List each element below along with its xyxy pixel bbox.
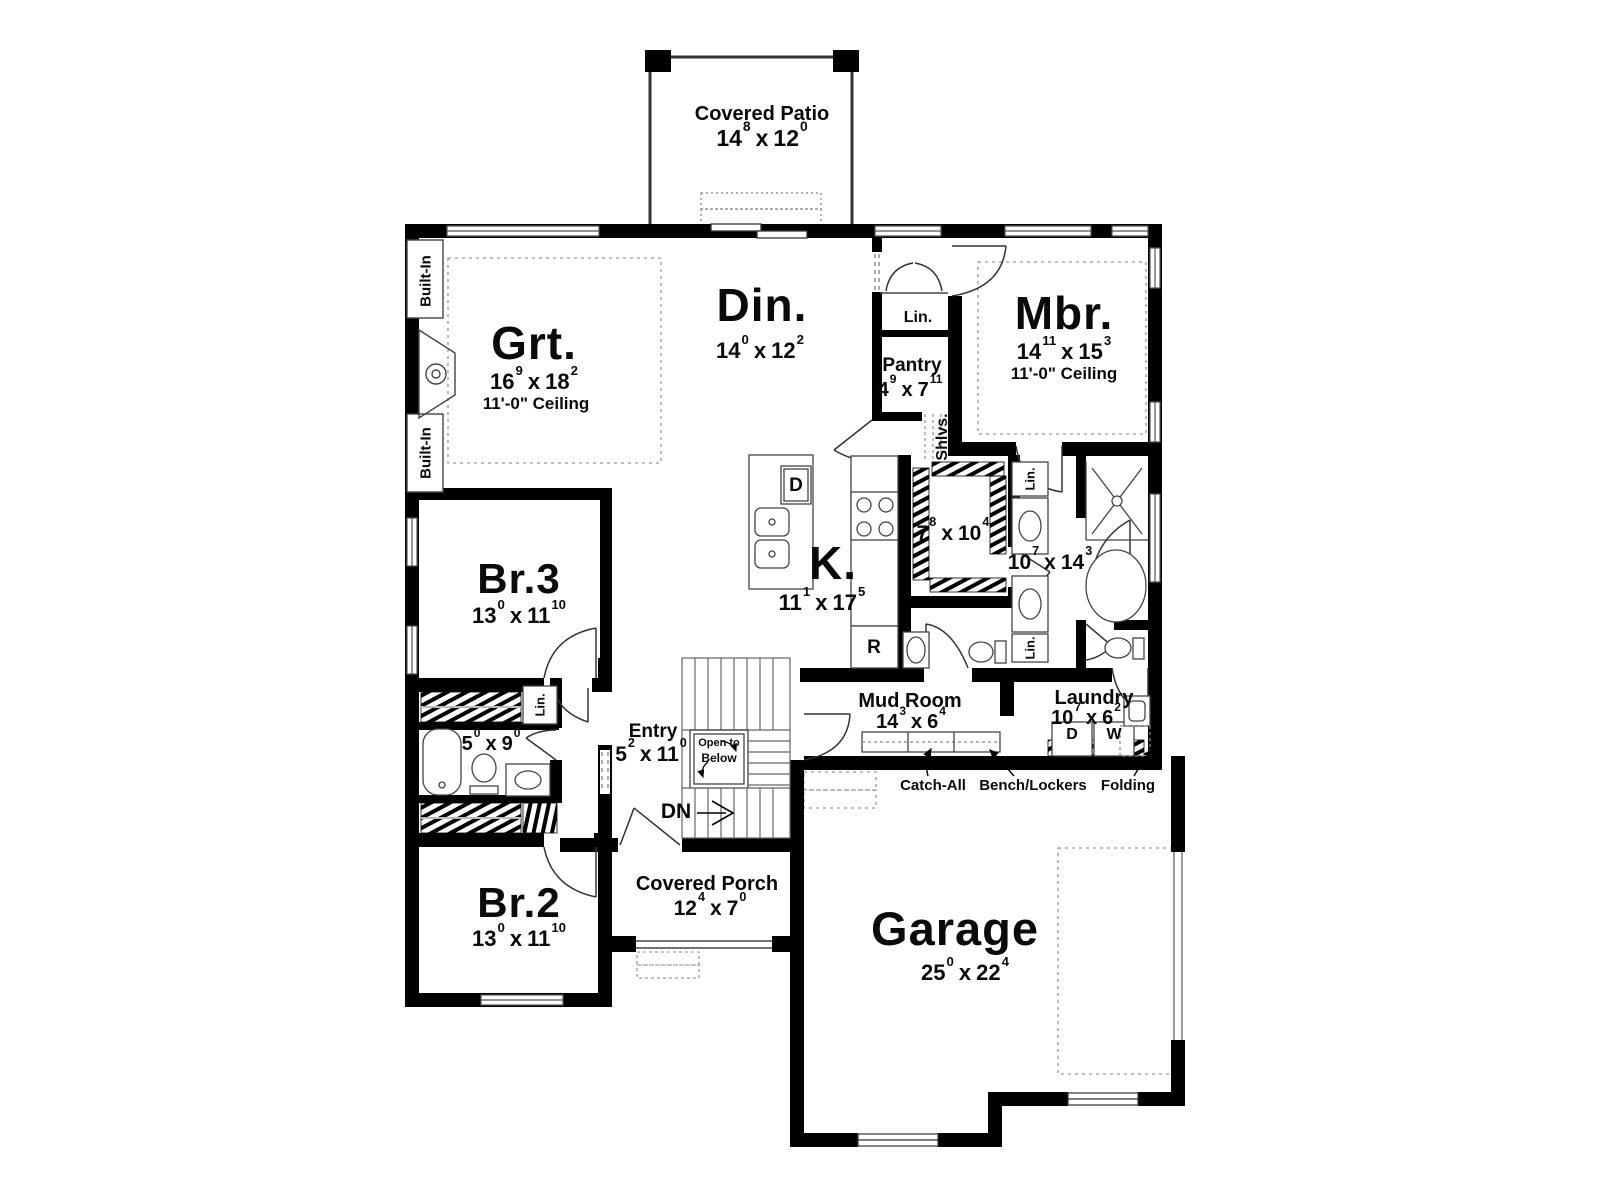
linen-hall-label: Lin. <box>904 310 932 326</box>
bedroom2-dim: 130x1110 <box>472 928 566 950</box>
entry-dim: 52x110 <box>615 744 687 765</box>
laundry-dim: 107x62 <box>1051 708 1121 728</box>
floor-plan: Covered Patio 148x120 Grt. 169x182 11'-0… <box>0 0 1600 1200</box>
great-room-dim: 169x182 <box>490 371 578 393</box>
mud-room-label: Mud Room <box>858 691 961 711</box>
patio-steps <box>701 193 821 225</box>
laundry-label: Laundry <box>1055 688 1134 708</box>
dining-label: Din. <box>717 282 808 328</box>
catch-all-label: Catch-All <box>900 778 966 793</box>
refrigerator-label: R <box>867 638 881 657</box>
pantry-dim: 49x711 <box>878 380 943 400</box>
washer-label: W <box>1106 727 1121 743</box>
dining-dim: 140x122 <box>716 340 804 362</box>
dryer-label: D <box>1066 727 1078 743</box>
master-bedroom-dim: 1411x153 <box>1017 341 1112 363</box>
open-to-below-line2: Below <box>701 752 736 764</box>
powder-toilet <box>969 642 993 662</box>
kitchen-dim: 111x175 <box>779 592 866 614</box>
linen-master-bottom-label: Lin. <box>1024 636 1037 659</box>
garage-label: Garage <box>871 905 1039 952</box>
garage-dim: 250x224 <box>921 962 1009 984</box>
covered-porch-label: Covered Porch <box>636 874 778 894</box>
hall-bath-dim: 50x90 <box>462 734 521 754</box>
built-in-bottom-label: Built-In <box>419 427 434 479</box>
entry-label: Entry <box>629 722 678 741</box>
great-room-ceiling: 11'-0" Ceiling <box>483 395 590 412</box>
linen-hall-bath-label: Lin. <box>534 693 547 716</box>
mud-room-dim: 143x64 <box>876 712 946 732</box>
down-label: DN <box>661 801 691 822</box>
folding-label: Folding <box>1101 778 1155 793</box>
bench-lockers-label: Bench/Lockers <box>979 778 1087 793</box>
open-to-below-line1: Open to <box>698 738 740 749</box>
master-bath-dim: 107x143 <box>1008 552 1092 573</box>
built-in-top-label: Built-In <box>419 255 434 307</box>
covered-porch-dim: 124x70 <box>674 898 747 919</box>
covered-patio-label: Covered Patio <box>695 104 829 124</box>
bedroom3-label: Br.3 <box>477 558 560 600</box>
bedroom3-dim: 130x1110 <box>472 605 566 627</box>
kitchen-label: K. <box>809 540 857 586</box>
master-closet-dim: 78x104 <box>917 523 990 544</box>
covered-patio-dim: 148x120 <box>716 127 807 150</box>
great-room-label: Grt. <box>491 320 577 366</box>
tub <box>1086 550 1146 622</box>
master-bedroom-ceiling: 11'-0" Ceiling <box>1011 365 1118 382</box>
master-bedroom-label: Mbr. <box>1015 290 1114 336</box>
hall-toilet <box>472 754 496 782</box>
linen-master-top-label: Lin. <box>1024 467 1037 490</box>
bedroom2-label: Br.2 <box>477 882 560 924</box>
shelves-label: Shlvs. <box>935 413 951 460</box>
dishwasher-label: D <box>789 476 803 495</box>
down-arrow <box>697 801 733 825</box>
toilet-master <box>1105 638 1131 658</box>
